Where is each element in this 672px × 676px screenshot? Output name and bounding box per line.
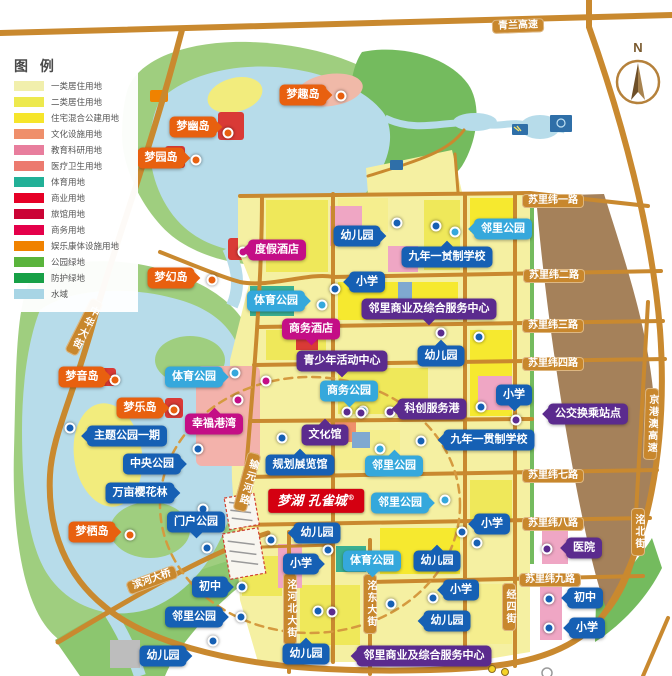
map-callout[interactable]: 幼儿园 <box>334 226 381 247</box>
marker-dot <box>207 275 218 286</box>
marker-dot <box>416 436 427 447</box>
legend-swatch <box>14 177 44 187</box>
legend-item: 水域 <box>14 288 134 300</box>
legend-label: 医疗卫生用地 <box>51 160 102 172</box>
legend-swatch <box>14 289 44 299</box>
map-callout-label: 体育公园 <box>254 295 298 307</box>
legend-label: 商务用地 <box>51 224 85 236</box>
map-callout-label: 小学 <box>356 276 378 288</box>
map-callout[interactable]: 体育公园 <box>165 367 223 388</box>
map-callout[interactable]: 科创服务港 <box>398 399 467 420</box>
map-callout[interactable]: 幸福港湾 <box>185 414 243 435</box>
legend-swatch <box>14 273 44 283</box>
legend-label: 娱乐康体设施用地 <box>51 240 119 252</box>
street-label: 苏里纬九路 <box>519 573 581 587</box>
legend-item: 商业用地 <box>14 192 134 204</box>
map-callout[interactable]: 梦幻岛 <box>148 268 195 289</box>
legend-label: 水域 <box>51 288 68 300</box>
map-callout-label: 小学 <box>290 558 312 570</box>
map-callout[interactable]: 青少年活动中心 <box>297 351 388 372</box>
map-callout-label: 中央公园 <box>130 458 174 470</box>
legend-label: 教育科研用地 <box>51 144 102 156</box>
map-callout[interactable]: 小学 <box>496 385 532 406</box>
map-callout-label: 小学 <box>576 622 598 634</box>
map-callout[interactable]: 邻里公园 <box>365 456 423 477</box>
marker-dot <box>266 535 277 546</box>
marker-dot <box>313 606 324 617</box>
map-callout-label: 初中 <box>199 581 221 593</box>
marker-dot <box>431 221 442 232</box>
marker-dot <box>544 594 555 605</box>
marker-dot <box>191 155 202 166</box>
map-callout[interactable]: 梦乐岛 <box>117 398 164 419</box>
marker-dot <box>233 395 244 406</box>
marker-dot <box>544 623 555 634</box>
legend-swatch <box>14 97 44 107</box>
marker-dot <box>236 612 247 623</box>
logo-text: 梦湖 孔雀城 <box>277 494 347 509</box>
legend-swatch <box>14 81 44 91</box>
marker-dot <box>450 227 461 238</box>
map-callout[interactable]: 主题公园一期 <box>87 426 167 447</box>
map-callout[interactable]: 文化馆 <box>302 425 349 446</box>
marker-dot <box>457 527 468 538</box>
marker-dot <box>65 423 76 434</box>
marker-dot <box>440 495 451 506</box>
map-callout[interactable]: 初中 <box>192 577 228 598</box>
map-callout[interactable]: 邻里公园 <box>474 219 532 240</box>
map-callout[interactable]: 初中 <box>567 588 603 609</box>
street-label: 苏里纬七路 <box>522 469 584 483</box>
map-callout[interactable]: 商务酒店 <box>282 319 340 340</box>
marker-dot <box>202 543 213 554</box>
marker-dot <box>223 128 234 139</box>
map-callout[interactable]: 幼儿园 <box>140 646 187 667</box>
legend-label: 住宅混合公建用地 <box>51 112 119 124</box>
marker-dot <box>474 332 485 343</box>
map-callout[interactable]: 幼儿园 <box>424 611 471 632</box>
marker-dot <box>356 408 367 419</box>
map-callout[interactable]: 规划展览馆 <box>266 455 335 476</box>
marker-dot <box>323 545 334 556</box>
map-callout-label: 梦乐岛 <box>124 402 157 414</box>
map-callout-label: 万亩樱花林 <box>113 487 168 499</box>
map-callout[interactable]: 邻里商业及综合服务中心 <box>362 299 497 320</box>
map-callout[interactable]: 度假酒店 <box>248 240 306 261</box>
map-callout-label: 公交换乘站点 <box>555 408 621 420</box>
legend-swatch <box>14 257 44 267</box>
legend-swatch <box>14 193 44 203</box>
map-callout-label: 主题公园一期 <box>94 430 160 442</box>
legend-label: 旅馆用地 <box>51 208 85 220</box>
map-callout[interactable]: 九年一贯制学校 <box>444 430 535 451</box>
legend-swatch <box>14 113 44 123</box>
map-callout-label: 邻里公园 <box>378 497 422 509</box>
map-callout[interactable]: 九年一贯制学校 <box>402 247 493 268</box>
map-callout-label: 医院 <box>573 542 595 554</box>
legend-panel: 图 例 一类居住用地二类居住用地住宅混合公建用地文化设施用地教育科研用地医疗卫生… <box>6 48 138 312</box>
map-callout[interactable]: 梦园岛 <box>138 148 185 169</box>
legend-item: 娱乐康体设施用地 <box>14 240 134 252</box>
map-callout[interactable]: 小学 <box>569 618 605 639</box>
marker-dot <box>193 444 204 455</box>
map-callout-label: 幼儿园 <box>147 650 180 662</box>
map-callout-label: 科创服务港 <box>405 403 460 415</box>
marker-dot <box>511 415 522 426</box>
map-callout[interactable]: 商务公园 <box>320 381 378 402</box>
street-label: 洺河北大街 <box>283 573 297 645</box>
legend-swatch <box>14 225 44 235</box>
map-callout[interactable]: 中央公园 <box>123 454 181 475</box>
map-callout-label: 梦幽岛 <box>177 121 210 133</box>
map-callout[interactable]: 小学 <box>349 272 385 293</box>
legend-item: 旅馆用地 <box>14 208 134 220</box>
map-callout-label: 小学 <box>450 584 472 596</box>
legend-swatch <box>14 129 44 139</box>
map-callout-label: 幼儿园 <box>431 615 464 627</box>
map-callout-label: 梦趣岛 <box>287 89 320 101</box>
street-label: 洺北街 <box>631 508 645 556</box>
map-callout-label: 幼儿园 <box>301 527 334 539</box>
map-callout-label: 梦栖岛 <box>76 526 109 538</box>
legend-item: 教育科研用地 <box>14 144 134 156</box>
street-label: 苏里纬三路 <box>522 319 584 333</box>
legend-items: 一类居住用地二类居住用地住宅混合公建用地文化设施用地教育科研用地医疗卫生用地体育… <box>14 80 134 300</box>
legend-label: 商业用地 <box>51 192 85 204</box>
legend-label: 防护绿地 <box>51 272 85 284</box>
legend-item: 一类居住用地 <box>14 80 134 92</box>
compass: N <box>606 38 670 116</box>
legend-swatch <box>14 241 44 251</box>
map-callout-label: 邻里公园 <box>481 223 525 235</box>
street-label: 苏里纬二路 <box>523 269 585 283</box>
logo-trademark: ® <box>348 493 355 502</box>
street-label: 洺东大街 <box>363 574 377 634</box>
legend-item: 防护绿地 <box>14 272 134 284</box>
map-callout-label: 梦幻岛 <box>155 272 188 284</box>
map-callout-label: 邻里公园 <box>172 611 216 623</box>
street-label: 苏里纬一路 <box>522 194 584 208</box>
marker-dot <box>237 582 248 593</box>
marker-dot <box>330 284 341 295</box>
map-callout-label: 梦音岛 <box>66 371 99 383</box>
marker-dot <box>277 433 288 444</box>
map-callout-label: 邻里商业及综合服务中心 <box>364 650 485 662</box>
map-callout[interactable]: 门户公园 <box>167 512 225 533</box>
legend-item: 文化设施用地 <box>14 128 134 140</box>
marker-dot <box>386 599 397 610</box>
map-callout[interactable]: 幼儿园 <box>283 644 330 665</box>
map-callout[interactable]: 邻里商业及综合服务中心 <box>357 646 492 667</box>
legend-item: 医疗卫生用地 <box>14 160 134 172</box>
marker-dot <box>472 538 483 549</box>
map-callout-label: 幼儿园 <box>341 230 374 242</box>
compass-n-label: N <box>633 40 642 55</box>
map-callout[interactable]: 梦音岛 <box>59 367 106 388</box>
marker-dot <box>125 530 136 541</box>
map-callout[interactable]: 小学 <box>474 514 510 535</box>
marker-dot <box>336 91 347 102</box>
legend-label: 体育用地 <box>51 176 85 188</box>
map-callout-label: 梦园岛 <box>145 152 178 164</box>
marker-dot <box>261 376 272 387</box>
map-callout[interactable]: 邻里公园 <box>165 607 223 628</box>
map-callout[interactable]: 小学 <box>283 554 319 575</box>
map-callout-label: 九年一贯制学校 <box>451 434 528 446</box>
legend-item: 公园绿地 <box>14 256 134 268</box>
legend-label: 公园绿地 <box>51 256 85 268</box>
marker-dot <box>476 402 487 413</box>
legend-label: 文化设施用地 <box>51 128 102 140</box>
marker-dot <box>230 368 241 379</box>
legend-item: 体育用地 <box>14 176 134 188</box>
map-callout-label: 体育公园 <box>172 371 216 383</box>
marker-dot <box>542 544 553 555</box>
map-callout[interactable]: 邻里公园 <box>371 493 429 514</box>
legend-label: 二类居住用地 <box>51 96 102 108</box>
marker-dot <box>375 444 386 455</box>
marker-dot <box>327 607 338 618</box>
legend-swatch <box>14 161 44 171</box>
street-label: 苏里纬八路 <box>522 517 584 531</box>
marker-dot <box>436 328 447 339</box>
map-callout[interactable]: 幼儿园 <box>418 346 465 367</box>
marker-dot <box>428 593 439 604</box>
street-label: 京港澳高速 <box>643 388 660 460</box>
street-label: 青兰高速 <box>492 18 544 34</box>
marker-dot <box>169 405 180 416</box>
legend-item: 住宅混合公建用地 <box>14 112 134 124</box>
planning-map: N 图 例 一类居住用地二类居住用地住宅混合公建用地文化设施用地教育科研用地医疗… <box>0 0 672 676</box>
map-callout[interactable]: 体育公园 <box>343 551 401 572</box>
legend-swatch <box>14 145 44 155</box>
map-callout[interactable]: 医院 <box>566 538 602 559</box>
street-label: 经四街 <box>502 583 516 631</box>
legend-swatch <box>14 209 44 219</box>
legend-label: 一类居住用地 <box>51 80 102 92</box>
map-callout[interactable]: 幼儿园 <box>414 551 461 572</box>
map-callout-label: 小学 <box>481 518 503 530</box>
map-callout[interactable]: 万亩樱花林 <box>106 483 175 504</box>
map-callout[interactable]: 梦栖岛 <box>69 522 116 543</box>
map-callout[interactable]: 幼儿园 <box>294 523 341 544</box>
map-callout[interactable]: 体育公园 <box>247 291 305 312</box>
legend-title: 图 例 <box>14 56 134 76</box>
map-callout[interactable]: 梦幽岛 <box>170 117 217 138</box>
legend-item: 二类居住用地 <box>14 96 134 108</box>
legend-item: 商务用地 <box>14 224 134 236</box>
marker-dot <box>392 218 403 229</box>
map-callout-label: 度假酒店 <box>255 244 299 256</box>
map-callout-label: 初中 <box>574 592 596 604</box>
map-callout[interactable]: 公交换乘站点 <box>548 404 628 425</box>
marker-dot <box>317 300 328 311</box>
marker-dot <box>342 407 353 418</box>
marker-dot <box>208 636 219 647</box>
map-callout[interactable]: 梦趣岛 <box>280 85 327 106</box>
map-callout[interactable]: 小学 <box>443 580 479 601</box>
street-label: 苏里纬四路 <box>522 357 584 371</box>
logo-plate: 梦湖 孔雀城® <box>268 489 364 513</box>
